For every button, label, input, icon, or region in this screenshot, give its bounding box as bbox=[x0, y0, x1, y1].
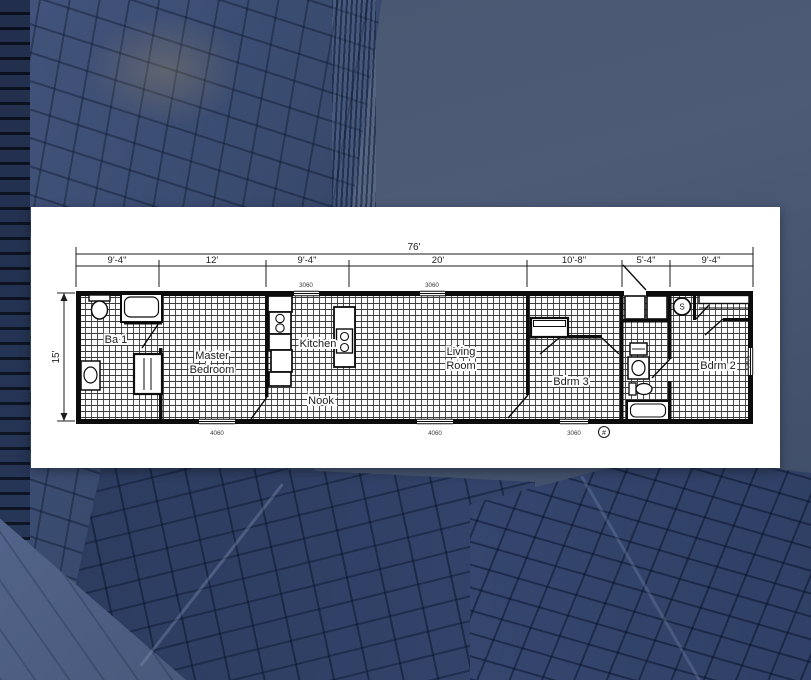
window-top-kitchen bbox=[294, 291, 319, 296]
window-light-glow bbox=[55, 0, 275, 150]
utility-fixtures: S bbox=[625, 296, 691, 319]
floorplan-drawing: 76' 9'-4" 12' 9'-4" 20' 10'-8" 5'-4" 9'-… bbox=[31, 207, 780, 468]
room-label-bdrm3: Bdrm 3 bbox=[553, 376, 588, 388]
window-top-living bbox=[420, 291, 445, 296]
washer-icon bbox=[625, 296, 645, 319]
segment-dim-label: 10'-8" bbox=[562, 255, 586, 266]
segment-dim-label: 9'-4" bbox=[298, 255, 317, 266]
window-size-label: 4060 bbox=[428, 430, 442, 437]
segment-dim-label: 9'-4" bbox=[108, 255, 127, 266]
floorplan-card: 76' 9'-4" 12' 9'-4" 20' 10'-8" 5'-4" 9'-… bbox=[31, 207, 780, 468]
water-heater-label: S bbox=[679, 303, 684, 312]
bdrm3-closet bbox=[531, 318, 568, 337]
window-size-label: 3060 bbox=[567, 430, 581, 437]
window-size-label: 3060 bbox=[425, 282, 439, 289]
window-bottom-living bbox=[417, 419, 453, 424]
segment-dim-label: 12' bbox=[206, 255, 219, 266]
total-width-label: 76' bbox=[407, 242, 420, 253]
window-size-label: 4060 bbox=[210, 430, 224, 437]
window-bottom-master bbox=[199, 419, 235, 424]
page-background: 76' 9'-4" 12' 9'-4" 20' 10'-8" 5'-4" 9'-… bbox=[0, 0, 811, 680]
room-label-bdrm2: Bdrm 2 bbox=[700, 360, 735, 372]
room-label-master: Bedroom bbox=[190, 364, 235, 376]
room-label-master: Master bbox=[195, 350, 229, 362]
electric-panel-symbol: # bbox=[599, 427, 610, 438]
toilet-icon bbox=[629, 383, 636, 395]
dimension-line-segments: 9'-4" 12' 9'-4" 20' 10'-8" 5'-4" 9'-4" bbox=[76, 255, 753, 287]
electric-panel-glyph: # bbox=[602, 430, 606, 437]
dimension-line-height: 15' bbox=[51, 293, 75, 421]
room-label-nook: Nook bbox=[308, 395, 334, 407]
window-bottom-bdrm3 bbox=[560, 419, 588, 424]
room-label-living: Living bbox=[447, 346, 476, 358]
window-size-label: 3060 bbox=[299, 282, 313, 289]
segment-dim-label: 5'-4" bbox=[637, 255, 656, 266]
room-label-living: Room bbox=[446, 360, 475, 372]
room-label-kitchen: Kitchen bbox=[300, 338, 337, 350]
toilet-icon bbox=[89, 295, 110, 301]
segment-dim-label: 20' bbox=[432, 255, 445, 266]
exterior-door-opening bbox=[624, 290, 646, 296]
hall-closet bbox=[134, 354, 162, 394]
height-dim-label: 15' bbox=[51, 350, 62, 363]
room-label-ba1: Ba 1 bbox=[105, 334, 128, 346]
segment-dim-label: 9'-4" bbox=[702, 255, 721, 266]
kitchen-counter bbox=[268, 296, 292, 312]
dryer-icon bbox=[647, 296, 667, 319]
window-size-label: 3060 bbox=[743, 355, 750, 369]
dark-building-strip bbox=[0, 0, 30, 540]
